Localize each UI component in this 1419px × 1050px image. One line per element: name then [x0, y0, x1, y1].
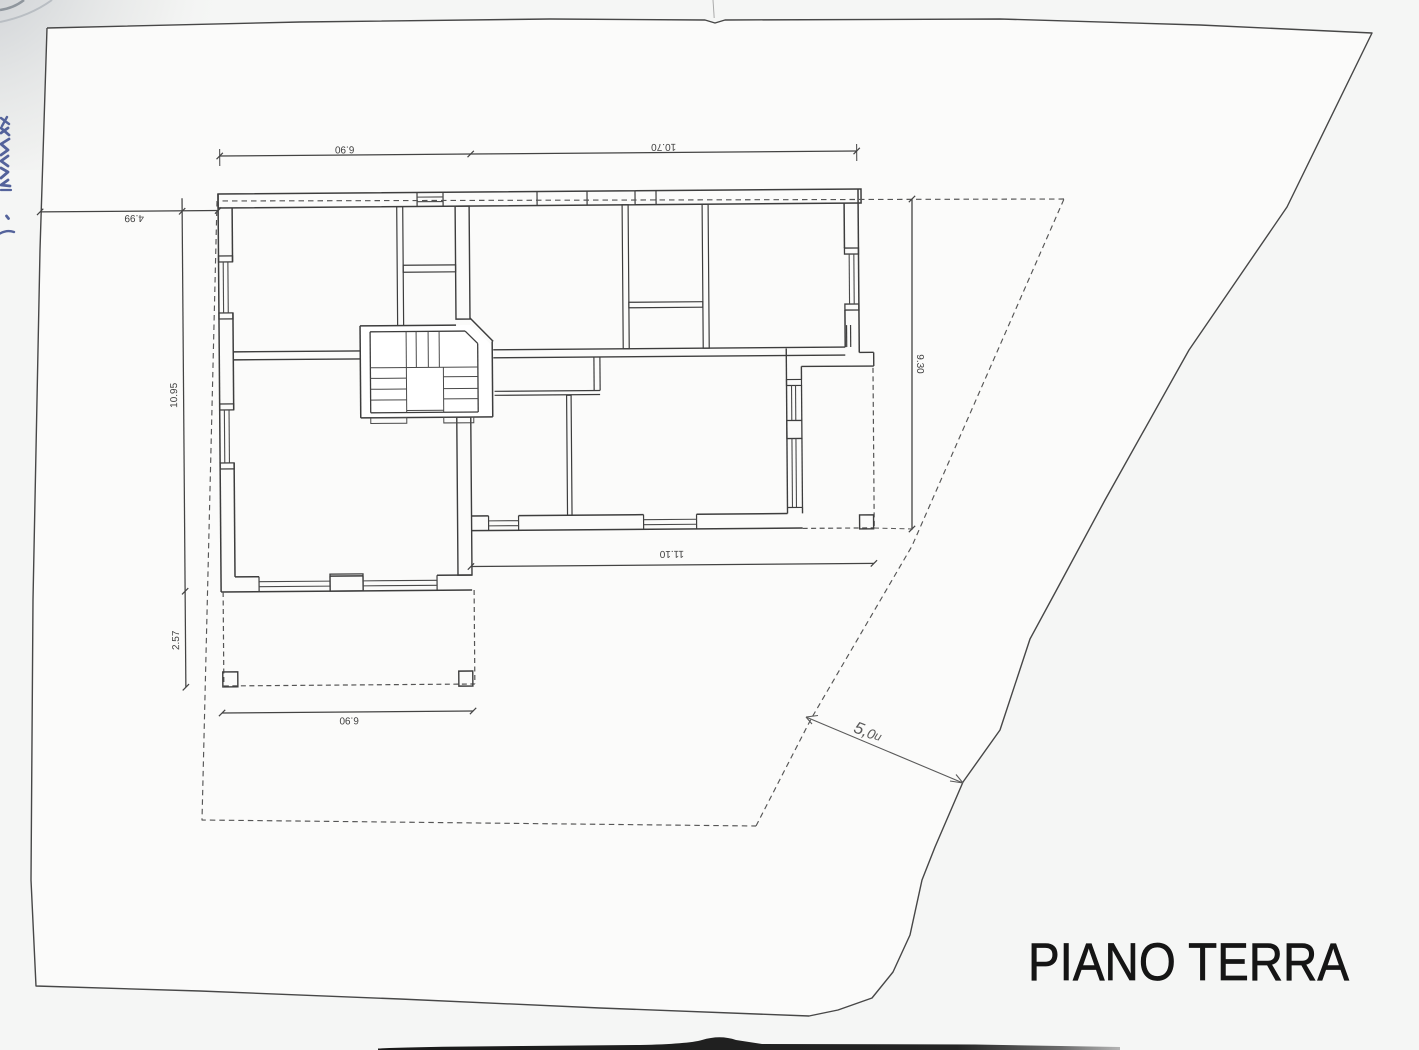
svg-text:6.90: 6.90: [334, 143, 354, 154]
svg-text:PIANO TERRA: PIANO TERRA: [1028, 933, 1350, 992]
svg-text:10.95: 10.95: [169, 382, 180, 408]
svg-text:10.70: 10.70: [651, 141, 677, 152]
svg-text:2.57: 2.57: [171, 630, 182, 650]
svg-text:6.90: 6.90: [339, 714, 359, 725]
svg-text:11.10: 11.10: [659, 548, 684, 559]
svg-text:9.30: 9.30: [914, 354, 925, 374]
svg-text:4.99: 4.99: [124, 212, 144, 223]
